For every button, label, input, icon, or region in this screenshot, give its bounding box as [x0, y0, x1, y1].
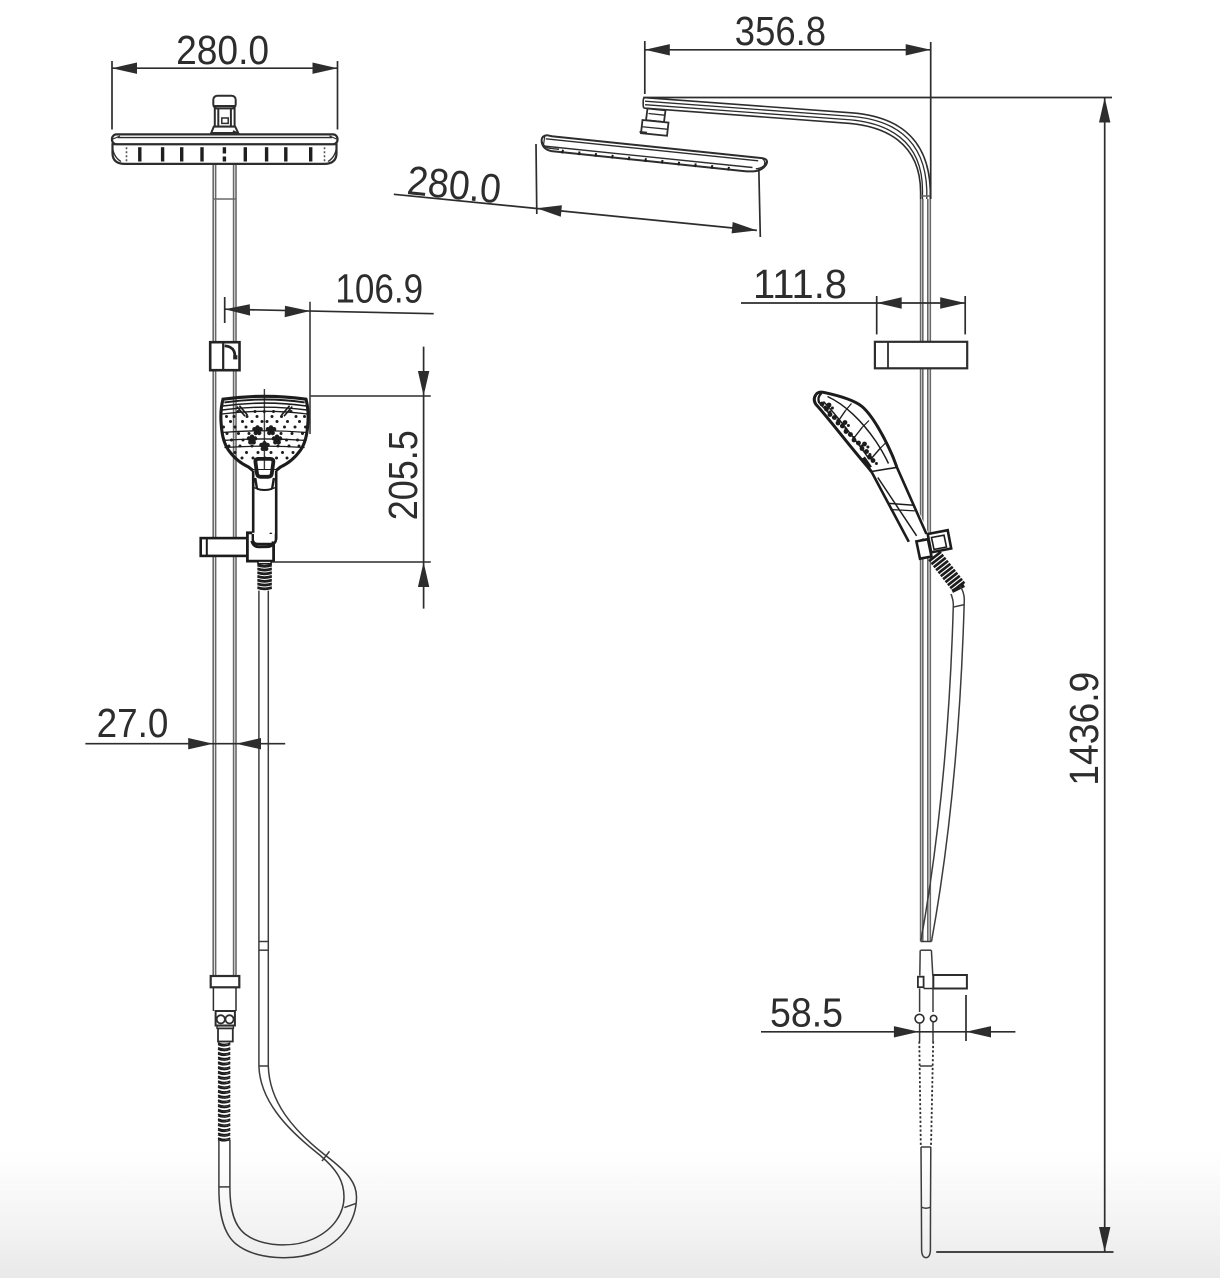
svg-text:58.5: 58.5 [770, 990, 843, 1036]
svg-text:280.0: 280.0 [176, 27, 269, 73]
svg-text:27.0: 27.0 [97, 700, 169, 746]
svg-text:356.8: 356.8 [735, 8, 826, 54]
svg-text:1436.9: 1436.9 [1061, 672, 1107, 786]
svg-text:111.8: 111.8 [753, 261, 847, 307]
svg-text:106.9: 106.9 [335, 266, 423, 312]
svg-text:280.0: 280.0 [405, 157, 503, 212]
svg-text:205.5: 205.5 [380, 430, 426, 520]
